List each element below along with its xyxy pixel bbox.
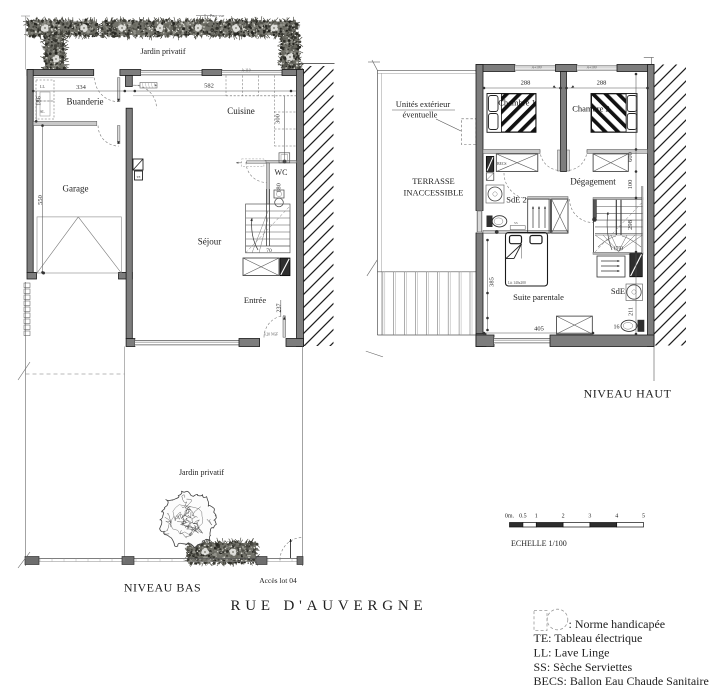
svg-text:SL: SL <box>40 109 45 114</box>
svg-text:SS: SS <box>514 221 518 225</box>
svg-text:298: 298 <box>627 220 634 230</box>
svg-text:Cuisine: Cuisine <box>227 106 255 116</box>
svg-text:600: 600 <box>627 152 634 162</box>
svg-text:RUE D'AUVERGNE: RUE D'AUVERGNE <box>231 598 428 614</box>
svg-text:Pare-vue: Pare-vue <box>210 13 224 18</box>
svg-text:SdE: SdE <box>611 286 625 296</box>
svg-text:TE: Tableau électrique: TE: Tableau électrique <box>534 631 643 645</box>
svg-text:550: 550 <box>37 195 44 205</box>
svg-text:Jardin privatif: Jardin privatif <box>179 468 224 477</box>
svg-text:2: 2 <box>562 514 565 520</box>
svg-text:211: 211 <box>629 307 635 316</box>
svg-text:Suite parentale: Suite parentale <box>513 292 564 302</box>
svg-text:0m.: 0m. <box>505 514 515 520</box>
svg-text:Garage: Garage <box>63 184 89 194</box>
svg-text:Buanderie: Buanderie <box>67 97 104 107</box>
svg-text:300: 300 <box>274 114 281 124</box>
svg-text:ECHELLE 1/100: ECHELLE 1/100 <box>511 539 567 548</box>
svg-text:Chambre 1: Chambre 1 <box>498 98 536 108</box>
svg-text:186: 186 <box>36 95 43 106</box>
svg-text:Lit 140x200: Lit 140x200 <box>508 281 526 285</box>
svg-text:Dégagement: Dégagement <box>570 177 616 187</box>
svg-text:334: 334 <box>76 84 87 91</box>
svg-text:LL: LL <box>40 84 45 89</box>
svg-text:: Norme handicapée: : Norme handicapée <box>569 617 666 631</box>
svg-text:BECS: Ballon Eau Chaude Sanita: BECS: Ballon Eau Chaude Sanitaire <box>534 674 709 688</box>
svg-text:éventuelle: éventuelle <box>403 110 438 120</box>
svg-text:SS: Sèche Serviettes: SS: Sèche Serviettes <box>534 660 633 674</box>
svg-text:4: 4 <box>615 514 618 520</box>
svg-text:100: 100 <box>627 180 634 190</box>
svg-text:582: 582 <box>204 83 214 90</box>
svg-text:Séjour: Séjour <box>198 237 222 247</box>
svg-text:INACCESSIBLE: INACCESSIBLE <box>404 188 464 198</box>
svg-text:Chambre 2: Chambre 2 <box>572 104 610 114</box>
svg-text:A+100: A+100 <box>586 66 596 70</box>
svg-text:TE: TE <box>136 175 140 179</box>
svg-text:Accès lot 04: Accès lot 04 <box>259 576 297 585</box>
svg-text:(70): (70) <box>614 245 623 252</box>
svg-text:0.5: 0.5 <box>519 514 527 520</box>
svg-text:TERRASSE: TERRASSE <box>412 176 455 186</box>
svg-text:70: 70 <box>266 248 272 254</box>
svg-text:4.20 NGF: 4.20 NGF <box>264 333 278 337</box>
svg-text:Unités extérieur: Unités extérieur <box>396 99 451 109</box>
svg-text:1: 1 <box>535 514 538 520</box>
svg-text:385: 385 <box>489 277 496 287</box>
svg-text:A+100: A+100 <box>531 66 541 70</box>
svg-text:WC: WC <box>275 168 288 177</box>
svg-text:405: 405 <box>534 326 544 333</box>
svg-text:288: 288 <box>521 80 531 87</box>
svg-text:3: 3 <box>588 514 591 520</box>
svg-text:16: 16 <box>614 325 620 331</box>
svg-text:180: 180 <box>276 183 283 193</box>
svg-text:A-110: A-110 <box>241 69 250 73</box>
svg-text:BECS: BECS <box>497 162 507 166</box>
svg-text:237: 237 <box>277 304 283 313</box>
svg-text:Jardin privatif: Jardin privatif <box>140 47 185 56</box>
svg-text:Entrée: Entrée <box>244 295 266 305</box>
svg-text:5: 5 <box>642 514 645 520</box>
svg-text:NIVEAU BAS: NIVEAU BAS <box>124 581 201 595</box>
svg-text:SdE 2: SdE 2 <box>506 195 527 205</box>
svg-text:288: 288 <box>597 80 607 87</box>
svg-text:NIVEAU HAUT: NIVEAU HAUT <box>584 387 672 401</box>
svg-text:LL: Lave Linge: LL: Lave Linge <box>534 646 610 660</box>
